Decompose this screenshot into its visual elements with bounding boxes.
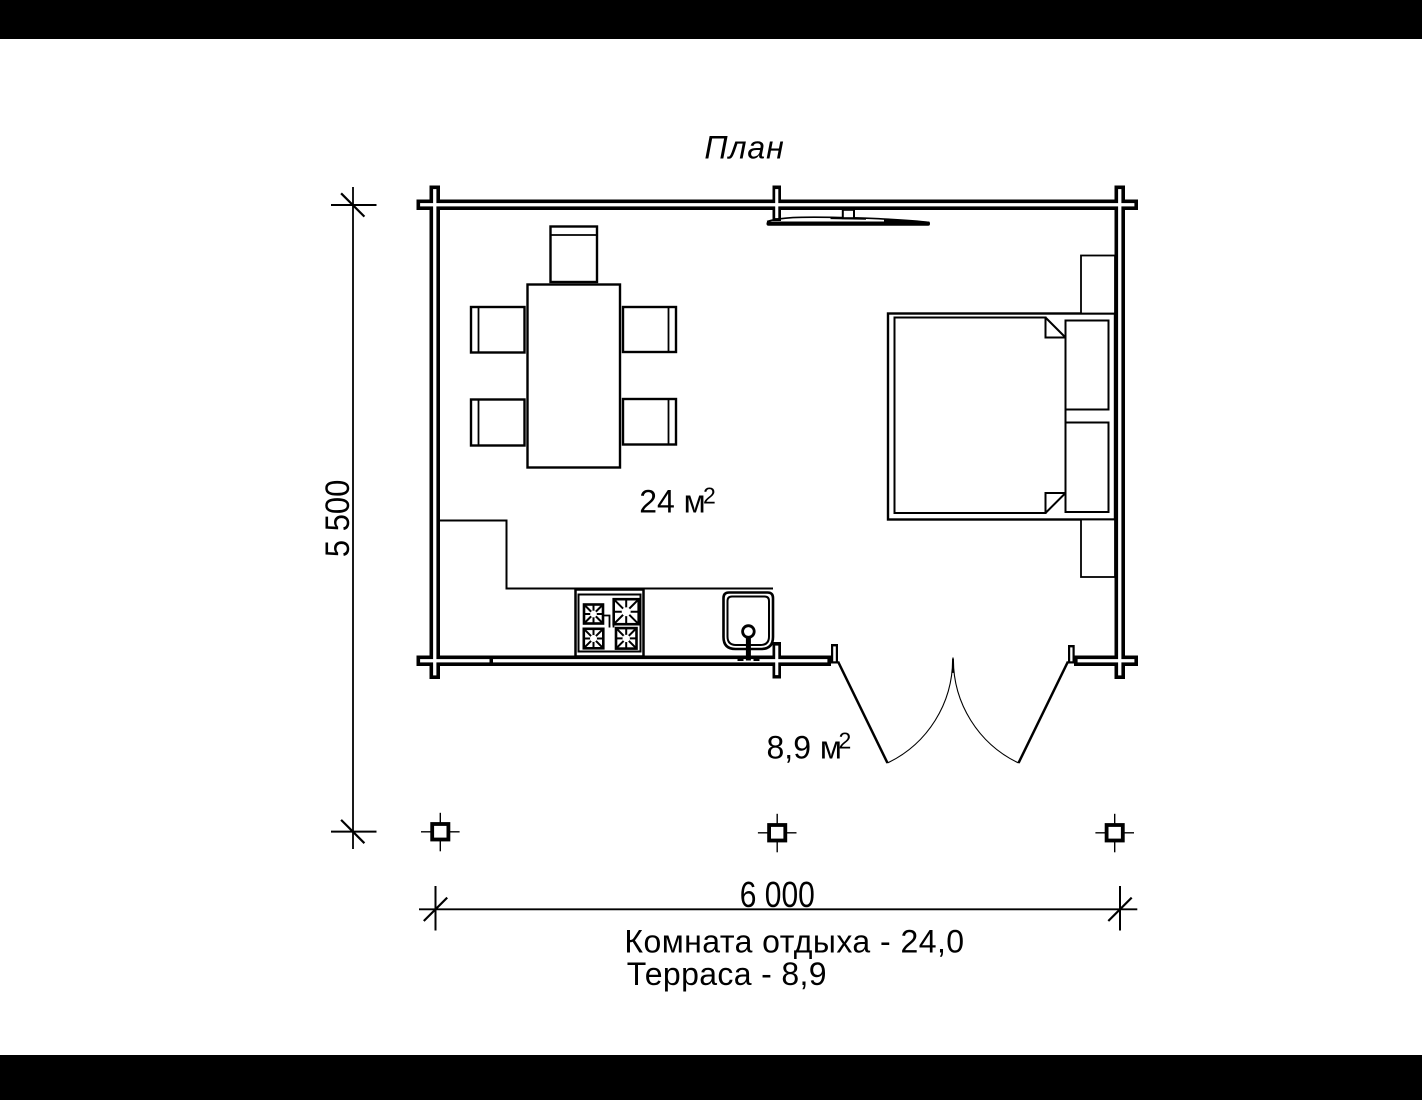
svg-text:План: План [704, 130, 784, 166]
svg-text:Терраса - 8,9: Терраса - 8,9 [627, 956, 827, 992]
svg-text:24 м: 24 м [639, 483, 705, 519]
svg-text:8,9 м: 8,9 м [767, 730, 842, 766]
svg-text:Комната отдыха - 24,0: Комната отдыха - 24,0 [624, 923, 964, 959]
svg-text:6 000: 6 000 [740, 874, 815, 915]
svg-text:5 500: 5 500 [319, 480, 357, 557]
svg-text:2: 2 [839, 728, 852, 754]
svg-text:2: 2 [703, 482, 716, 508]
